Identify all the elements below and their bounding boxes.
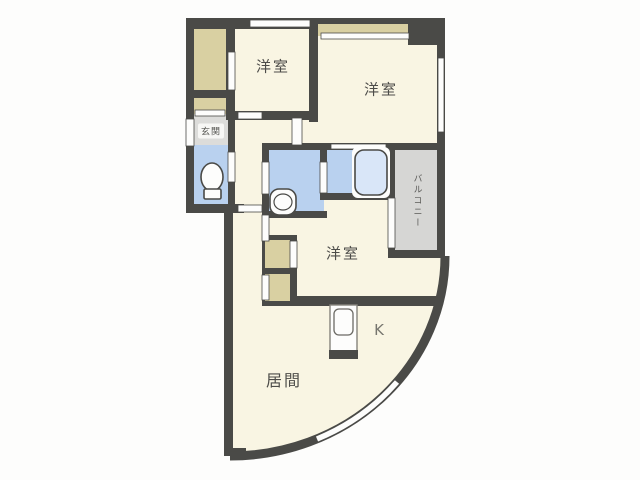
closet-bedroom1 [192, 26, 230, 92]
bedroom2-door [292, 118, 302, 145]
kitchen-sink-icon [329, 305, 358, 359]
toilet-door [228, 152, 235, 182]
washbasin-icon [270, 189, 296, 215]
middle-room-door [262, 215, 269, 241]
balcony-floor [392, 148, 439, 252]
bedroom2-closet-door [321, 33, 409, 39]
entrance-floor [190, 113, 232, 149]
bathtub-icon [352, 147, 390, 198]
shoe-closet-door [195, 110, 225, 116]
bathroom-door [320, 162, 327, 193]
entrance-door [186, 119, 194, 146]
bedroom2-window [438, 58, 444, 132]
bedroom1-door [238, 112, 262, 119]
washroom-door [262, 162, 269, 194]
closet1-door [228, 52, 235, 90]
middle-closet2-door [262, 275, 269, 300]
floor-plan: 洋室 洋室 洋室 居間 K 玄関 バルコニー [0, 0, 640, 480]
toilet-icon [201, 163, 223, 199]
balcony-door [388, 198, 395, 248]
hallway-opening [238, 205, 262, 212]
floor-plan-drawing [0, 0, 640, 480]
bedroom1-window [250, 20, 310, 27]
middle-closet1-door [290, 241, 297, 268]
